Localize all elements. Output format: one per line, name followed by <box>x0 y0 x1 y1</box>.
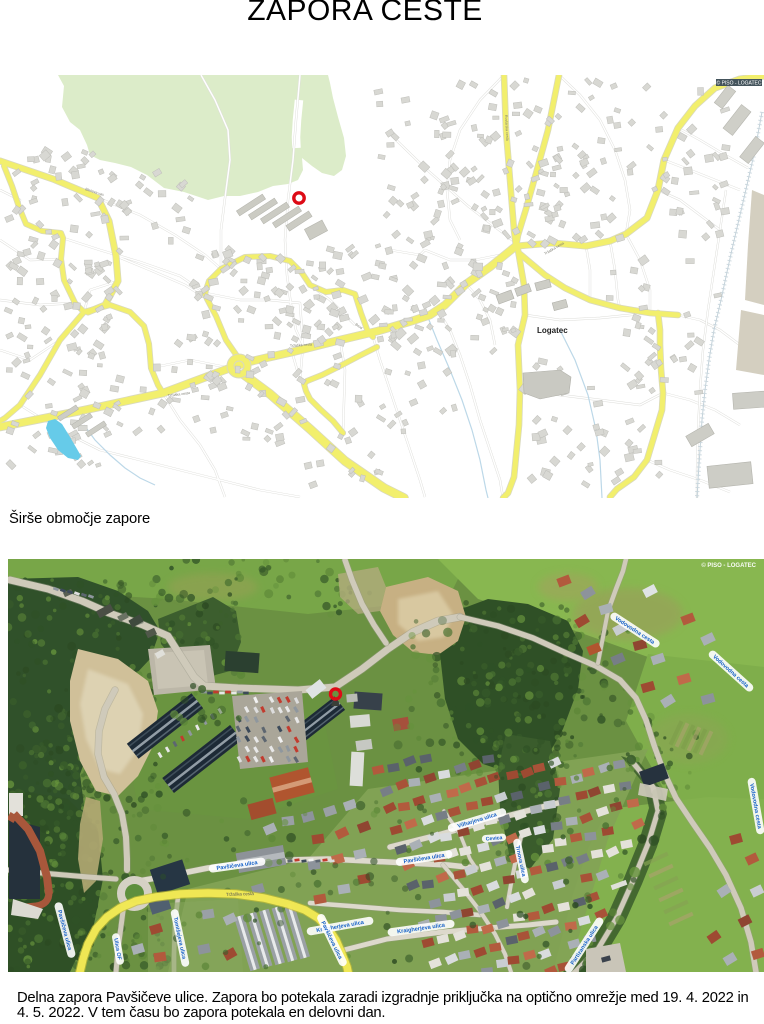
svg-text:© PISO - LOGATEC: © PISO - LOGATEC <box>717 80 762 87</box>
svg-text:Tržaška cesta: Tržaška cesta <box>226 891 254 897</box>
svg-text:© PISO - LOGATEC: © PISO - LOGATEC <box>701 562 756 569</box>
svg-text:Logatec: Logatec <box>537 326 568 335</box>
